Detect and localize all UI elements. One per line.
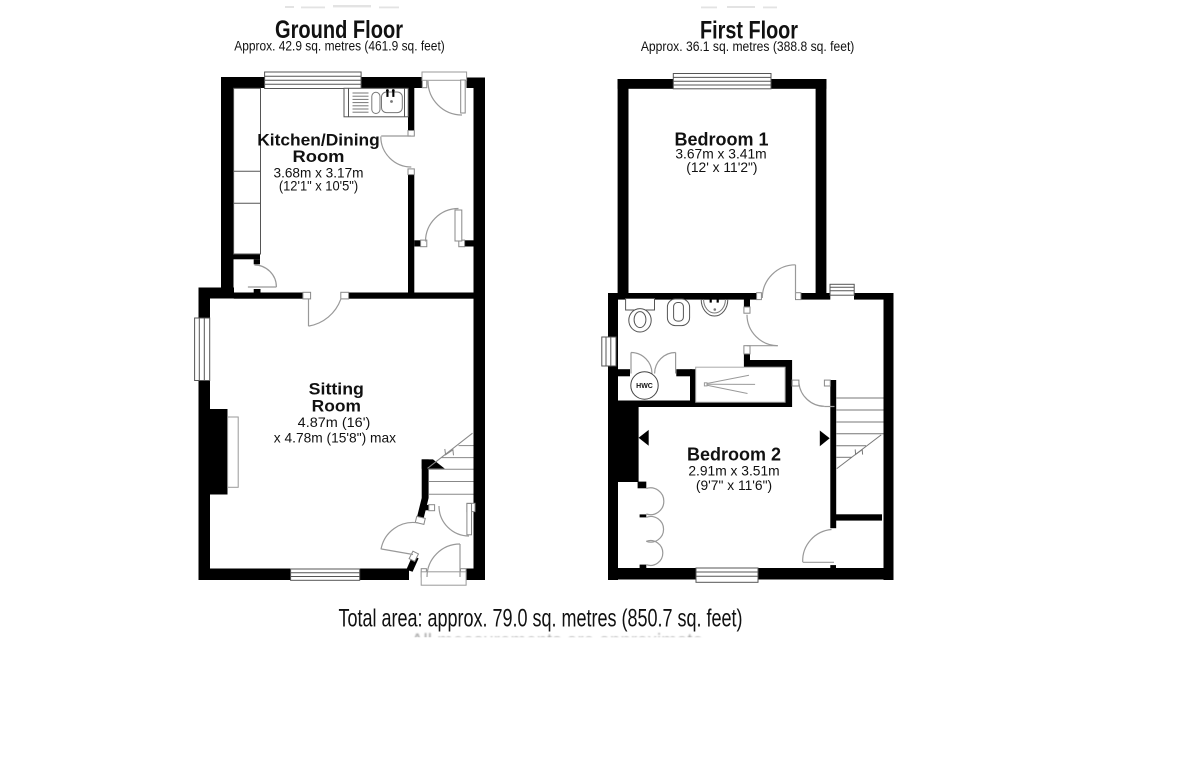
svg-text:Room: Room	[293, 147, 345, 166]
svg-text:(9'7" x 11'6"): (9'7" x 11'6")	[696, 478, 772, 493]
svg-text:Approx. 42.9 sq. metres (461.9: Approx. 42.9 sq. metres (461.9 sq. feet)	[234, 39, 445, 54]
svg-text:Approx. 36.1 sq. metres (388.8: Approx. 36.1 sq. metres (388.8 sq. feet)	[641, 39, 855, 54]
svg-text:Bedroom 2: Bedroom 2	[687, 445, 781, 465]
svg-text:(12'1" x 10'5"): (12'1" x 10'5")	[279, 179, 358, 194]
svg-text:Total area: approx. 79.0 sq. m: Total area: approx. 79.0 sq. metres (850…	[339, 605, 743, 633]
svg-text:4.87m (16'): 4.87m (16')	[298, 415, 371, 430]
svg-text:(12' x 11'2"): (12' x 11'2")	[686, 160, 757, 175]
svg-text:HWC: HWC	[636, 383, 653, 390]
svg-text:Room: Room	[312, 397, 361, 416]
svg-text:x 4.78m (15'8") max: x 4.78m (15'8") max	[274, 430, 396, 445]
svg-text:2.91m x 3.51m: 2.91m x 3.51m	[688, 464, 779, 479]
